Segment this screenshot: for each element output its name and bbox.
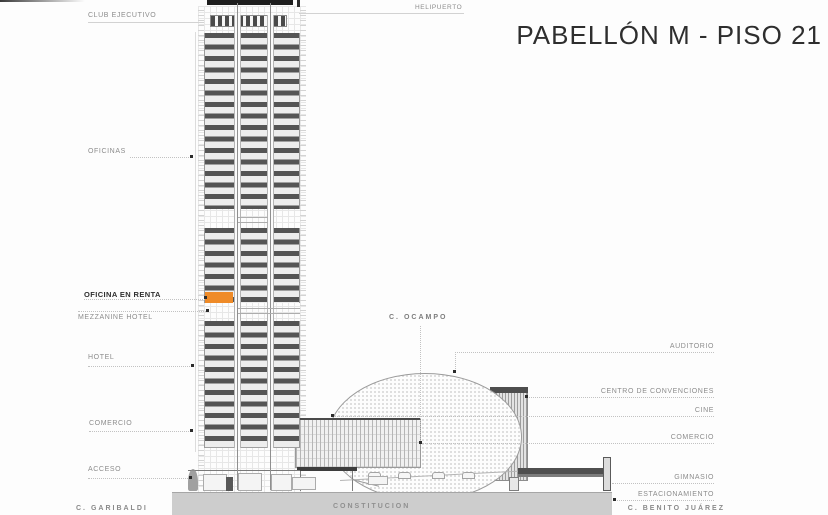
leader-ocampo-drop bbox=[420, 326, 421, 441]
gym-walkway-beam bbox=[518, 468, 608, 477]
leader-auditorio-drop bbox=[455, 352, 456, 371]
label-cine: CINE bbox=[695, 407, 714, 414]
leader-dot bbox=[206, 309, 209, 312]
mezzanine-line bbox=[238, 313, 300, 314]
leader-hotel bbox=[88, 366, 192, 367]
helipad bbox=[207, 0, 293, 5]
parked-car bbox=[432, 472, 445, 479]
hotel-block bbox=[204, 321, 300, 448]
street-benito-juarez: C. BENITO JUÁREZ bbox=[628, 505, 725, 512]
leader-dot bbox=[419, 441, 422, 444]
office-tower-upper-block bbox=[204, 33, 300, 209]
leader-dot bbox=[191, 364, 194, 367]
entrance-canopy-line bbox=[188, 470, 300, 471]
street-ocampo: C. OCAMPO bbox=[389, 314, 447, 321]
leader-estacionamiento bbox=[615, 500, 714, 501]
executive-club-floor bbox=[210, 15, 287, 27]
street-garibaldi: C. GARIBALDI bbox=[76, 505, 148, 512]
entrance-volume bbox=[271, 474, 292, 491]
core-rail-left bbox=[237, 3, 238, 490]
leader-comercio-right bbox=[422, 443, 714, 444]
leader-dot bbox=[453, 370, 456, 373]
leader-gimnasio bbox=[612, 483, 714, 484]
label-comercio-right: COMERCIO bbox=[671, 434, 714, 441]
podium-entrance bbox=[292, 477, 316, 490]
podium-kiosk bbox=[368, 476, 388, 485]
canopy-post bbox=[352, 471, 353, 491]
leader-acceso bbox=[88, 478, 190, 479]
label-club-ejecutivo: CLUB EJECUTIVO bbox=[88, 12, 156, 19]
label-hotel: HOTEL bbox=[88, 354, 114, 361]
leader-dot bbox=[190, 429, 193, 432]
leader-dot bbox=[189, 476, 192, 479]
label-auditorio: AUDITORIO bbox=[670, 343, 714, 350]
parked-car bbox=[398, 472, 411, 479]
tree bbox=[188, 469, 198, 491]
convention-center-roof bbox=[490, 387, 528, 393]
mezzanine-line bbox=[238, 308, 300, 309]
retail-podium bbox=[295, 418, 421, 468]
page-title: PABELLÓN M - PISO 21 bbox=[516, 20, 822, 51]
elevation-drawing: PABELLÓN M - PISO 21 bbox=[0, 0, 828, 515]
mechanical-floor-line bbox=[238, 217, 268, 218]
leader-dot bbox=[525, 395, 528, 398]
label-acceso: ACCESO bbox=[88, 466, 121, 473]
label-mezzanine-hotel: MEZZANINE HOTEL bbox=[78, 314, 153, 321]
walkway-support bbox=[603, 457, 611, 491]
label-gimnasio: GIMNASIO bbox=[674, 474, 714, 481]
tower-dimension-line bbox=[195, 32, 196, 452]
leader-dot bbox=[190, 155, 193, 158]
leader-dot bbox=[204, 296, 207, 299]
leader-helipuerto bbox=[299, 13, 464, 14]
walkway-support bbox=[509, 477, 519, 491]
leader-comercio-left bbox=[89, 431, 191, 432]
leader-cine bbox=[333, 416, 714, 417]
leader-auditorio bbox=[455, 352, 714, 353]
leader-dot bbox=[331, 414, 334, 417]
label-comercio-left: COMERCIO bbox=[89, 420, 132, 427]
leader-centro-convenciones bbox=[527, 397, 714, 398]
leader-oficina-en-renta bbox=[84, 299, 205, 300]
podium-canopy bbox=[297, 467, 357, 471]
label-estacionamiento: ESTACIONAMIENTO bbox=[638, 491, 714, 498]
label-centro-convenciones: CENTRO DE CONVENCIONES bbox=[601, 388, 714, 395]
entrance-volume bbox=[203, 474, 227, 491]
label-helipuerto: HELIPUERTO bbox=[415, 4, 462, 11]
scan-edge-mark bbox=[0, 0, 85, 2]
street-constitucion: CONSTITUCION bbox=[333, 503, 410, 510]
leader-club-ejecutivo bbox=[88, 22, 204, 23]
leader-dot bbox=[613, 498, 616, 501]
cage-top-tick bbox=[297, 0, 300, 7]
label-oficina-en-renta: OFICINA EN RENTA bbox=[84, 290, 161, 299]
leader-mezzanine bbox=[78, 311, 206, 312]
leader-oficinas bbox=[130, 157, 191, 158]
mechanical-floor-line bbox=[238, 222, 268, 223]
entrance-door bbox=[226, 477, 233, 491]
label-oficinas: OFICINAS bbox=[88, 148, 126, 155]
parked-car bbox=[462, 472, 475, 479]
core-rail-right bbox=[270, 3, 271, 490]
office-for-rent-highlight bbox=[205, 292, 233, 303]
entrance-volume bbox=[238, 473, 262, 491]
